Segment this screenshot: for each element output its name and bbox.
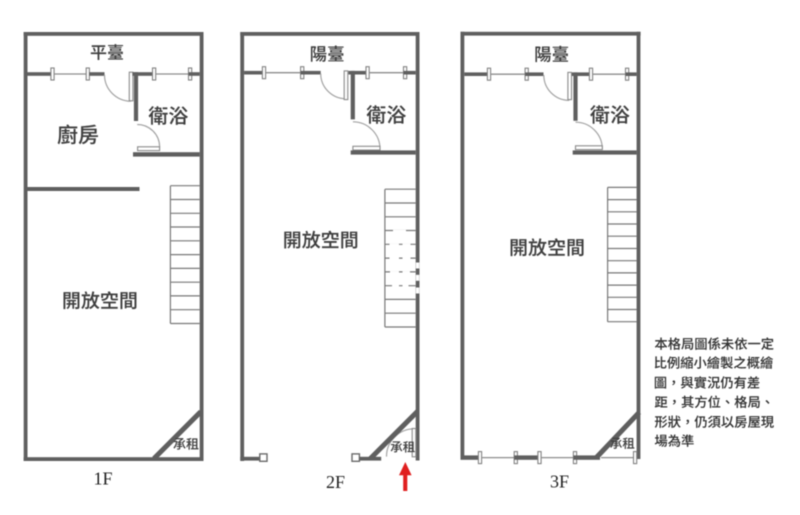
svg-text:1F: 1F: [94, 469, 113, 489]
svg-text:2F: 2F: [326, 472, 345, 492]
svg-text:3F: 3F: [550, 472, 569, 492]
